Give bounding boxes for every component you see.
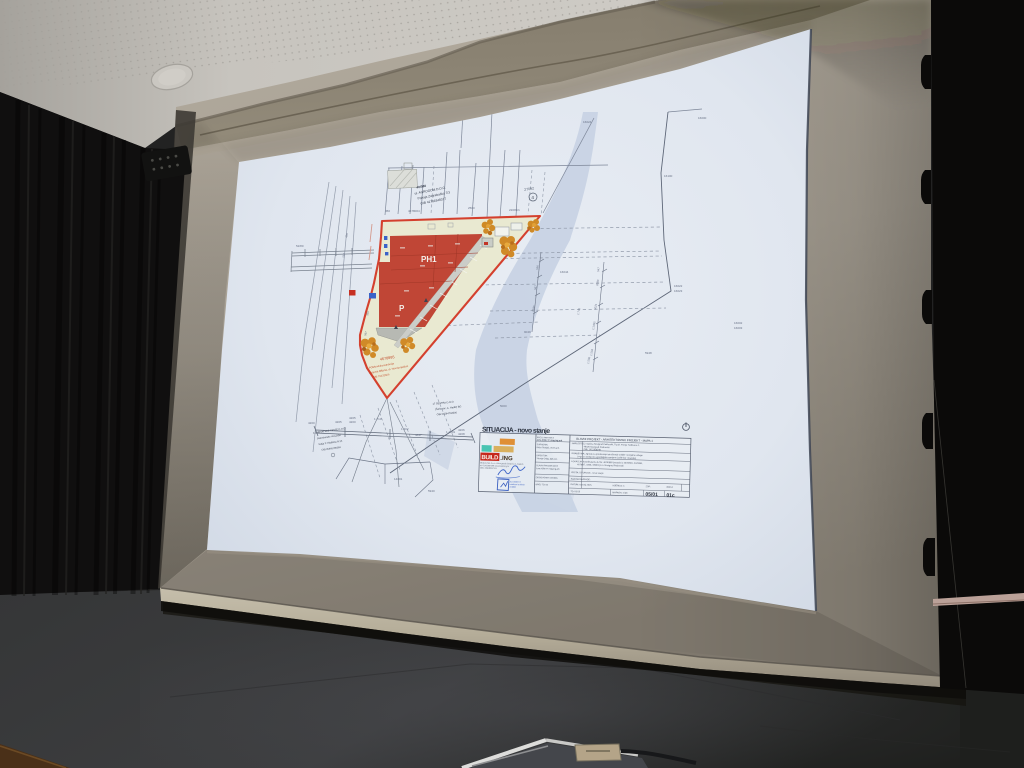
svg-text:16024: 16024 — [583, 120, 592, 124]
svg-text:4: 4 — [531, 195, 534, 200]
svg-text:4200: 4200 — [349, 420, 356, 424]
svg-text:4205: 4205 — [335, 420, 342, 424]
svg-text:DIREKTOR:: DIREKTOR: — [536, 455, 548, 457]
svg-text:2500: 2500 — [468, 206, 475, 210]
svg-text:Tvlonja Orlag, dipl.oec.: Tvlonja Orlag, dipl.oec. — [536, 457, 558, 461]
svg-text:16023: 16023 — [674, 289, 683, 293]
svg-text:BUILD: BUILD — [481, 455, 499, 461]
svg-text:4847: 4847 — [415, 433, 422, 437]
svg-text:PH1: PH1 — [421, 255, 437, 264]
svg-text:4208: 4208 — [458, 432, 465, 436]
svg-text:22099/1: 22099/1 — [509, 208, 520, 212]
svg-text:ZOP:: ZOP: — [646, 486, 652, 488]
svg-text:TD: 05/15: TD: 05/15 — [570, 491, 580, 493]
svg-text:01c: 01c — [666, 493, 675, 499]
svg-text:05/01: 05/01 — [645, 492, 658, 498]
svg-text:BROJ:: BROJ: — [667, 487, 674, 489]
svg-text:450: 450 — [385, 209, 390, 213]
svg-text:16100: 16100 — [664, 174, 673, 178]
svg-text:16022: 16022 — [674, 284, 683, 288]
svg-text:5940: 5940 — [428, 489, 435, 493]
svg-text:52/80: 52/80 — [296, 244, 304, 248]
svg-text:1 4001: 1 4001 — [446, 430, 456, 434]
svg-text:P: P — [399, 304, 405, 313]
svg-text:9049: 9049 — [524, 330, 531, 334]
svg-text:BROJ TD: 05: BROJ TD: 05 — [536, 484, 549, 486]
svg-text:5000: 5000 — [500, 404, 507, 408]
svg-text:DATUM: travanj 2015.: DATUM: travanj 2015. — [571, 483, 593, 487]
svg-text:4678004: 4678004 — [408, 209, 420, 213]
svg-text:RAZINA RAZRADE:: RAZINA RAZRADE: — [571, 478, 591, 482]
svg-text:16002: 16002 — [734, 321, 743, 325]
svg-text:.ING: .ING — [500, 456, 513, 462]
svg-text:16044: 16044 — [560, 270, 569, 274]
svg-text:MJERILO: 1:: MJERILO: 1: — [613, 485, 626, 487]
svg-text:4200: 4200 — [308, 421, 315, 425]
svg-text:A 3882: A 3882 — [510, 486, 517, 489]
svg-text:5948: 5948 — [645, 351, 652, 355]
svg-text:1 402: 1 402 — [401, 427, 409, 431]
svg-text:MAPA/SV: 1/08: MAPA/SV: 1/08 — [612, 491, 628, 494]
svg-text:SURADNIK:: SURADNIK: — [537, 443, 549, 446]
svg-text:16000: 16000 — [698, 116, 707, 120]
svg-text:16003: 16003 — [734, 326, 743, 330]
svg-text:1 710: 1 710 — [374, 417, 382, 421]
svg-text:14001: 14001 — [394, 477, 403, 481]
